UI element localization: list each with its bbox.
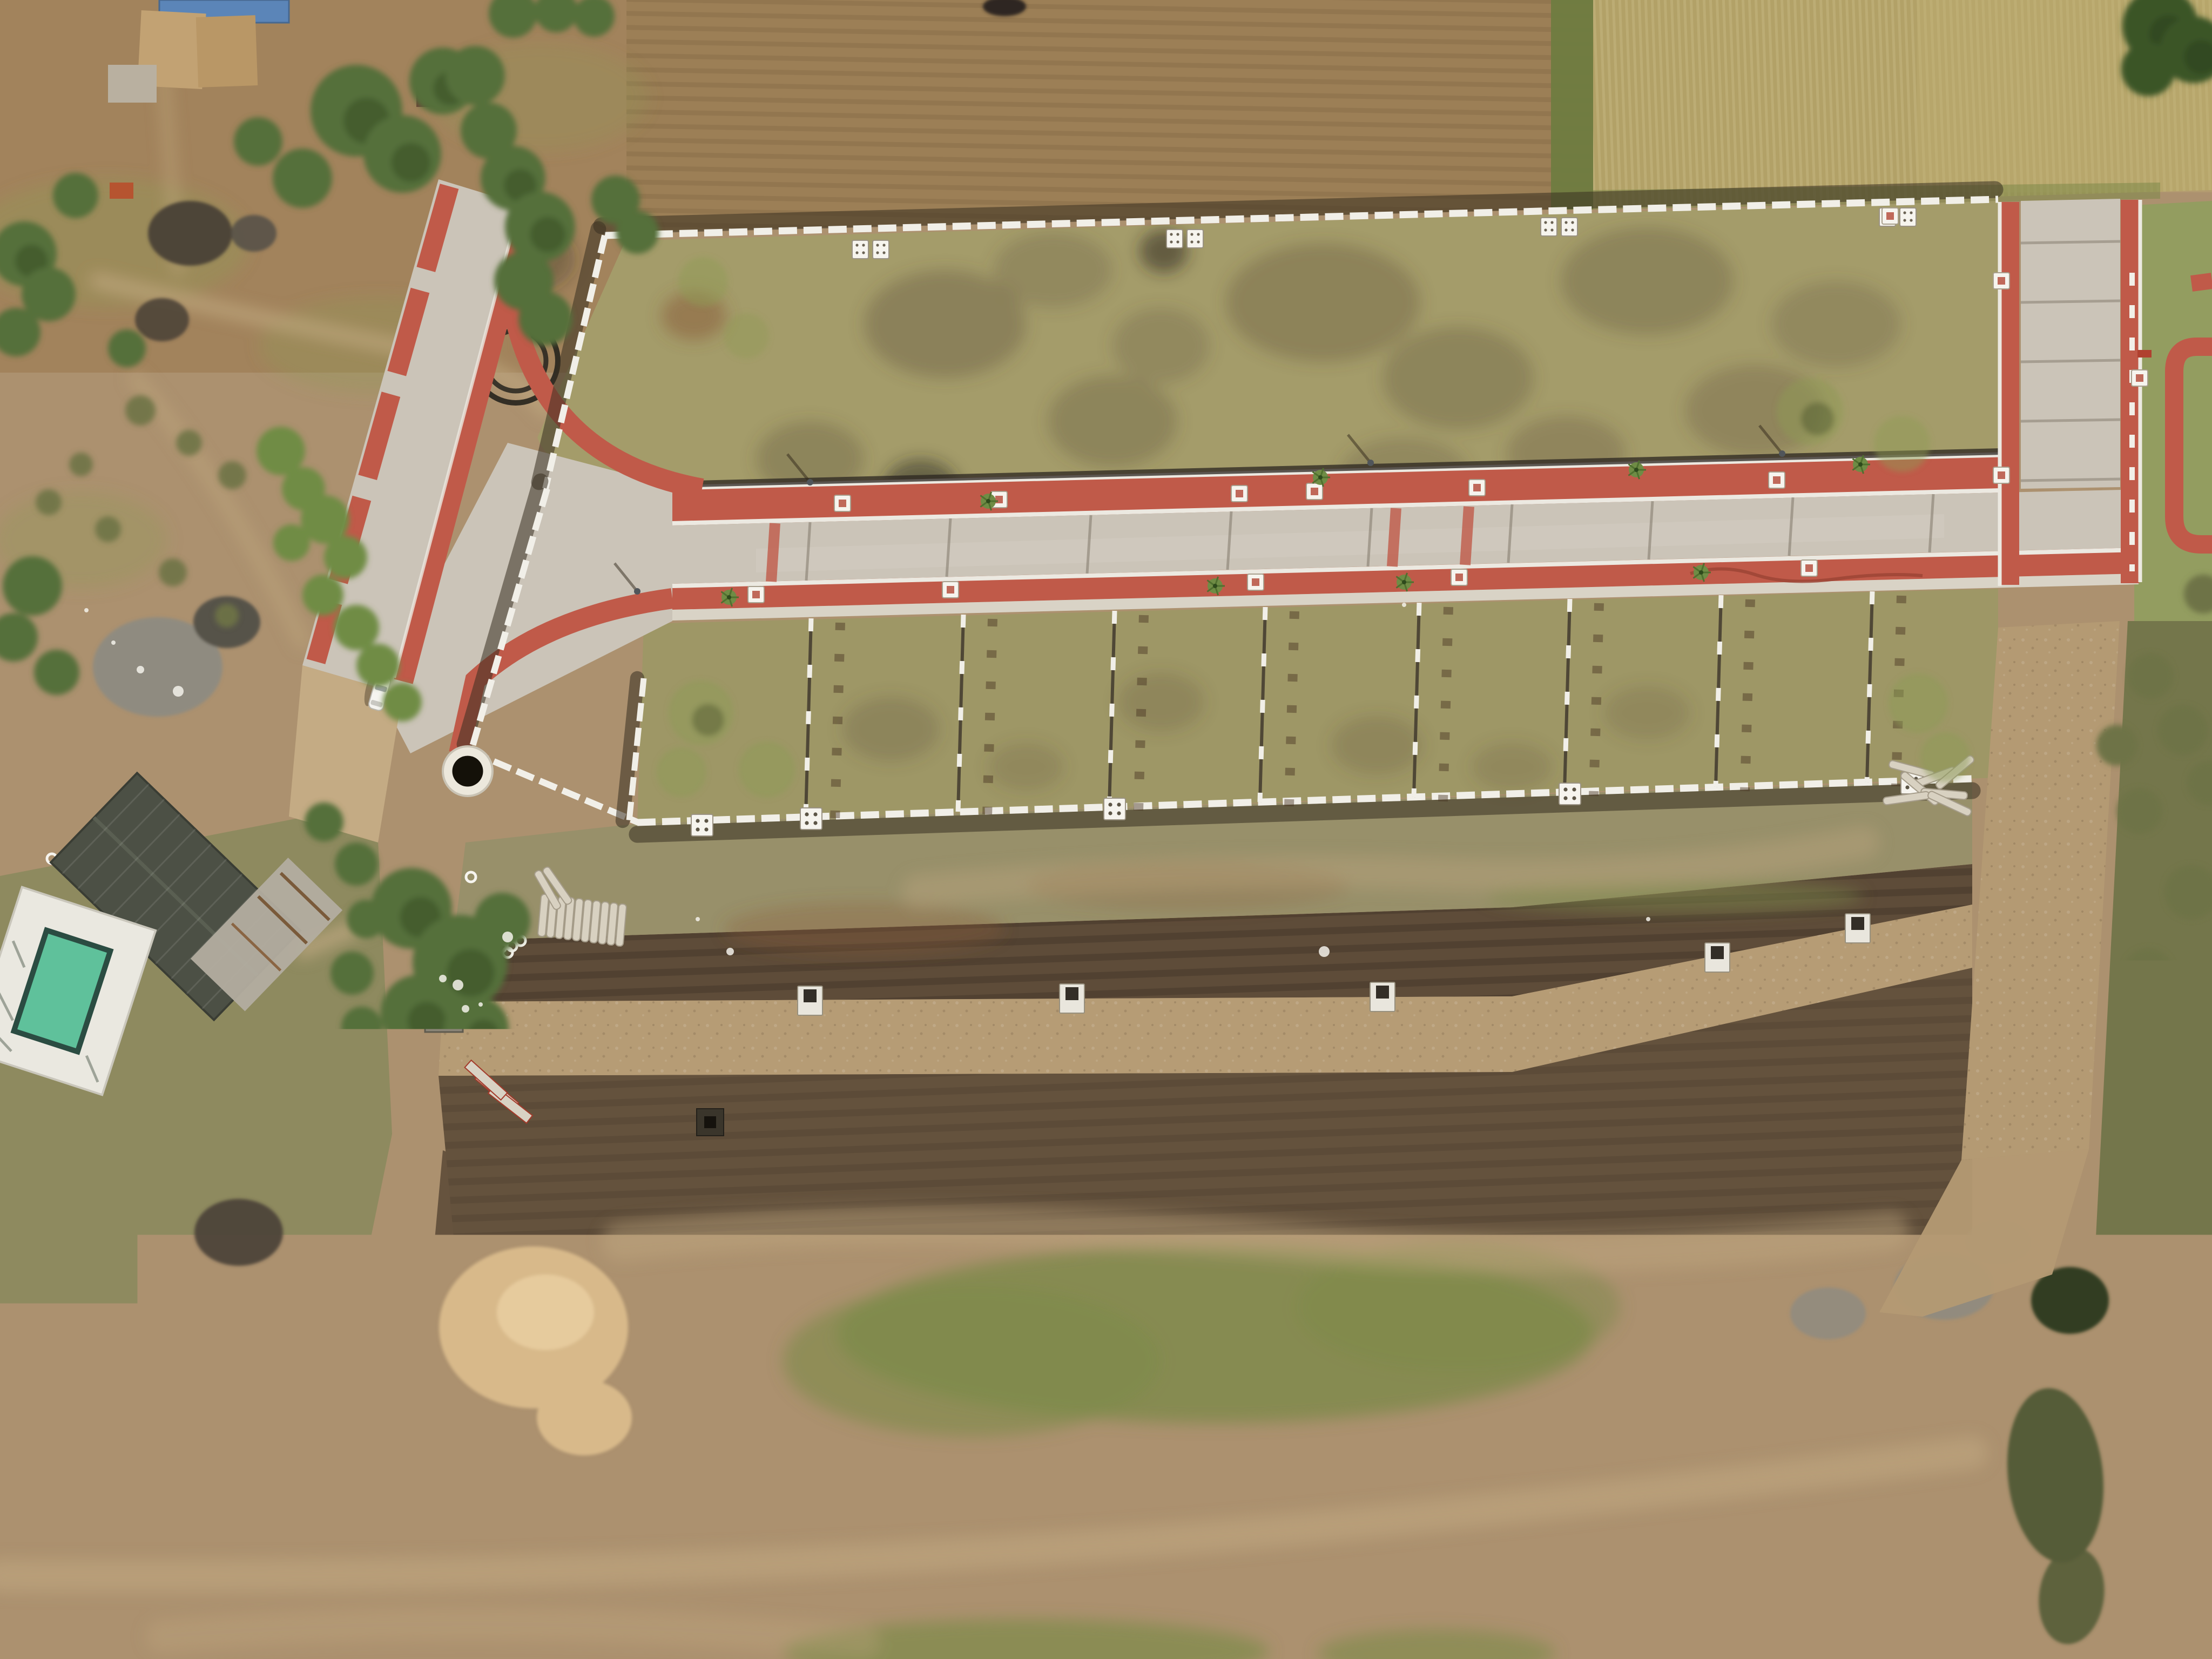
debris (240, 1428, 248, 1436)
plot-marker-dot (1550, 221, 1553, 224)
boundary-marker (1559, 783, 1581, 805)
plot-marker (1166, 230, 1183, 248)
utility-box-grate (947, 586, 954, 594)
plot-marker-dot (1176, 240, 1179, 243)
tree (154, 1310, 204, 1360)
debris (601, 1562, 609, 1570)
plot-marker-dot (1197, 233, 1199, 235)
plot-marker-dot (862, 251, 865, 254)
red-road-mark (1465, 507, 1469, 565)
terrain-patch (1604, 686, 1690, 740)
open-well (890, 1273, 921, 1304)
plot-marker-dot (882, 251, 885, 254)
lamppost (1779, 450, 1785, 457)
boundary-marker-dot (1108, 802, 1112, 806)
plot-marker-dot (862, 244, 865, 246)
tree (286, 1085, 319, 1118)
tree (331, 952, 374, 995)
street-palm-core (1402, 580, 1406, 584)
mound (148, 201, 232, 266)
debris (502, 1103, 513, 1114)
manhole-box-dark-lid (32, 1409, 44, 1421)
tree (215, 604, 239, 628)
tree (176, 430, 202, 456)
tree (383, 683, 422, 721)
tree (159, 558, 187, 586)
manhole-box-lid (1376, 986, 1389, 999)
tree (518, 292, 572, 346)
mound (194, 1199, 283, 1266)
debris (173, 686, 184, 697)
expansion-joint (2021, 301, 2120, 302)
utility-box-grate (1236, 490, 1243, 497)
manhole-box-lid (1137, 1479, 1150, 1492)
terrain-patch (1048, 375, 1177, 467)
plot-marker-dot (1544, 221, 1547, 224)
plot-marker-dot (1544, 228, 1547, 231)
tree (0, 1350, 44, 1395)
plot-marker (1541, 218, 1557, 236)
tree (2050, 1429, 2110, 1489)
tree (125, 395, 156, 426)
thatched-hut-2 (196, 15, 258, 87)
plot-marker-dot (1571, 221, 1574, 224)
terrain-patch (724, 902, 1004, 956)
street-palm-core (727, 595, 731, 599)
utility-box-grate (1252, 578, 1259, 586)
debris (137, 666, 144, 673)
plot-marker-dot (1564, 221, 1567, 224)
debris (485, 1056, 493, 1063)
tree-shade (692, 704, 724, 736)
manhole-box-dark-lid (325, 1351, 336, 1363)
boundary-marker-dot (696, 827, 699, 831)
mound (135, 298, 189, 341)
tree (324, 536, 367, 579)
tree (335, 842, 378, 886)
tree (40, 1337, 90, 1387)
utility-box-grate (1455, 574, 1463, 581)
tree (347, 900, 386, 939)
plot-marker (1900, 208, 1916, 226)
tree (739, 741, 795, 798)
mound (537, 1380, 632, 1455)
tree (287, 1216, 341, 1270)
street-palm-core (1213, 584, 1217, 588)
terrain-patch (1382, 327, 1534, 429)
manhole-box-dark-lid (704, 1116, 716, 1128)
plot-marker-dot (1170, 240, 1172, 243)
lamppost (807, 479, 813, 485)
debris (84, 608, 89, 612)
manhole-box-dark-lid (156, 1645, 168, 1657)
utility-box-grate (1886, 212, 1894, 220)
utility-box-grate (839, 500, 846, 507)
tree-shade (530, 217, 565, 252)
plot-marker-dot (1910, 219, 1912, 221)
boundary-marker-dot (805, 821, 808, 825)
expansion-joint (2021, 360, 2120, 362)
utility-box-grate (1773, 476, 1781, 484)
boundary-marker-dot (1572, 787, 1576, 791)
debris (1402, 603, 1406, 607)
terrain-patch (1118, 672, 1204, 732)
tree (474, 893, 530, 949)
tree (34, 650, 79, 695)
garden-paver-stub (2191, 281, 2212, 284)
boundary-marker-dot (1905, 785, 1909, 789)
manhole-box-lid (1851, 917, 1864, 930)
tree (678, 257, 728, 307)
terrain-patch (1331, 716, 1423, 775)
tree (2115, 1110, 2164, 1160)
tree (1874, 416, 1930, 472)
street-palm-core (986, 499, 990, 503)
utility-box-grate (1311, 488, 1318, 495)
debris (462, 1005, 469, 1013)
tree (724, 313, 769, 359)
expansion-joint (2021, 420, 2120, 421)
manhole-box-lid (1711, 946, 1724, 959)
boundary-marker-dot (1563, 787, 1567, 791)
tree (2096, 725, 2137, 766)
aerial-photo (0, 0, 2212, 1659)
shrine-roof (110, 183, 133, 199)
tree (2117, 1420, 2173, 1476)
boundary-marker-dot (696, 819, 699, 822)
tree (258, 1262, 306, 1311)
terrain-patch (1226, 243, 1420, 362)
tree (3, 556, 62, 616)
utility-box-grate (1998, 471, 2005, 479)
tree (335, 1114, 378, 1157)
lamppost (1367, 460, 1374, 466)
manhole-box-lid (1411, 1521, 1424, 1534)
plot-marker (1187, 230, 1203, 248)
boundary-marker-dot (813, 821, 817, 825)
debris (466, 1378, 476, 1389)
plot-marker-dot (1550, 228, 1553, 231)
utility-box-grate (2136, 374, 2143, 382)
plot-marker-dot (876, 244, 879, 246)
manhole-box-lid (1065, 987, 1078, 1000)
plot-marker-dot (882, 244, 885, 246)
terrain-patch (1771, 281, 1901, 367)
terrain-patch (1472, 743, 1553, 791)
tree (53, 173, 98, 218)
aerial-scene (0, 0, 2212, 1659)
terrain-patch (994, 232, 1112, 308)
tree (206, 1292, 260, 1346)
plot-marker (873, 240, 889, 259)
tree (95, 516, 121, 542)
boundary-marker-dot (704, 819, 708, 822)
tree (2121, 42, 2175, 96)
garden-bench (2137, 350, 2152, 358)
boundary-marker-dot (1572, 796, 1576, 800)
debris (726, 948, 734, 955)
plot-marker-dot (1170, 233, 1172, 235)
debris (806, 1238, 814, 1246)
manhole-box-lid (804, 989, 817, 1002)
plot-marker-dot (855, 244, 858, 246)
debris (1175, 1455, 1182, 1463)
debris (354, 1542, 359, 1547)
tree (2117, 788, 2162, 834)
mound (231, 215, 276, 252)
plot-marker-dot (1176, 233, 1179, 235)
manhole-box-lid (748, 1539, 761, 1552)
terrain-patch (783, 1285, 1161, 1437)
tree (312, 1165, 360, 1213)
manhole-box-dark-lid (123, 1561, 134, 1573)
plot-marker-dot (1903, 211, 1906, 214)
tree (2154, 1177, 2199, 1223)
tree (2158, 705, 2208, 755)
utility-box-grate (1805, 564, 1813, 572)
terrain-patch (1112, 308, 1210, 383)
street-palm-core (1634, 468, 1638, 472)
tree-shade (1801, 402, 1835, 436)
tree (341, 1007, 382, 1048)
boundary-marker-dot (1117, 802, 1121, 806)
mound (497, 1274, 594, 1350)
debris (501, 1408, 505, 1413)
terrain-patch (988, 743, 1064, 791)
plot-marker (1561, 218, 1577, 236)
lamppost (634, 588, 640, 595)
tree-shade (447, 949, 494, 996)
boundary-marker (691, 814, 713, 836)
plot-marker-dot (1564, 228, 1567, 231)
debris (1200, 1479, 1211, 1489)
debris (837, 1264, 848, 1274)
debris (111, 640, 116, 645)
utility-box-grate (1998, 277, 2005, 285)
utility-box-grate (1473, 484, 1481, 491)
debris (1646, 917, 1650, 921)
debris (1380, 1234, 1387, 1242)
debris (1022, 1594, 1033, 1605)
boundary-marker (1104, 798, 1125, 820)
tree-shade (392, 143, 430, 182)
plot-marker-dot (855, 251, 858, 254)
utility-box-grate (752, 591, 760, 598)
debris (478, 1002, 483, 1007)
debris (502, 932, 513, 942)
tree (273, 149, 332, 208)
farm-patio (108, 65, 157, 103)
tree-shade (2087, 1531, 2120, 1563)
debris (1887, 1207, 1895, 1215)
plot-marker-dot (1190, 240, 1193, 243)
red-road-mark (1392, 508, 1396, 567)
debris (1349, 1203, 1353, 1208)
terrain-patch (1561, 227, 1734, 335)
plot-marker-dot (1190, 233, 1193, 235)
tree (273, 524, 310, 561)
tree (657, 747, 706, 797)
tree (334, 605, 379, 650)
tree (2088, 1381, 2137, 1429)
dirt-track (162, 1624, 864, 1642)
boundary-marker (800, 808, 822, 829)
field-hedge (1551, 0, 1593, 210)
street-palm-core (1858, 462, 1863, 467)
boundary-marker-dot (805, 812, 808, 816)
debris (380, 1562, 387, 1570)
tree (305, 802, 343, 841)
plot-marker (852, 240, 868, 259)
tree (36, 489, 62, 515)
tree-shade (467, 1020, 500, 1052)
tree (93, 1324, 147, 1378)
tree (234, 117, 282, 166)
debris (453, 980, 463, 990)
red-road-mark (771, 523, 775, 582)
boundary-marker-dot (1117, 811, 1121, 815)
tree (356, 644, 400, 687)
tree-shade (408, 1002, 446, 1040)
plot-marker-dot (876, 251, 879, 254)
manhole-box-dark-lid (64, 1548, 76, 1560)
tree (2128, 653, 2173, 699)
plot-marker-dot (1197, 240, 1199, 243)
tree (69, 453, 93, 476)
debris (439, 975, 447, 982)
tree (1889, 673, 1948, 733)
tree (446, 46, 505, 105)
tree (2037, 1259, 2080, 1303)
terrain-patch (842, 697, 940, 761)
tree (2123, 948, 2173, 998)
utility-box-grate (995, 496, 1003, 503)
street-palm-core (1318, 475, 1323, 480)
boundary-marker-dot (1563, 796, 1567, 800)
tree (2150, 1357, 2204, 1411)
tree (616, 211, 659, 254)
mound (1790, 1287, 1866, 1339)
debris (92, 1604, 103, 1615)
plot-marker-dot (1571, 228, 1574, 231)
boundary-marker-dot (1108, 811, 1112, 815)
manhole-box-dark-lid (469, 1637, 481, 1649)
plot-marker-dot (1910, 211, 1912, 214)
tree (303, 1036, 340, 1073)
debris (1862, 1176, 1866, 1181)
boundary-marker-dot (704, 827, 708, 831)
manhole-box-lid (1479, 1470, 1492, 1483)
debris (696, 917, 700, 921)
debris (1319, 946, 1330, 957)
expansion-joint (2021, 241, 2120, 243)
plot-marker-dot (1903, 219, 1906, 221)
debris (1591, 1202, 1595, 1206)
tree (302, 575, 343, 616)
open-well (452, 756, 483, 786)
tree (2163, 1030, 2211, 1078)
tree (108, 329, 146, 367)
debris (276, 1454, 287, 1465)
boundary-marker-dot (813, 812, 817, 816)
expansion-joint (2021, 479, 2120, 481)
manhole-box-dark-lid (580, 1528, 592, 1540)
debris (1106, 1614, 1110, 1618)
street-palm-core (1699, 570, 1703, 575)
tree (218, 461, 246, 489)
tree (1920, 732, 1970, 782)
